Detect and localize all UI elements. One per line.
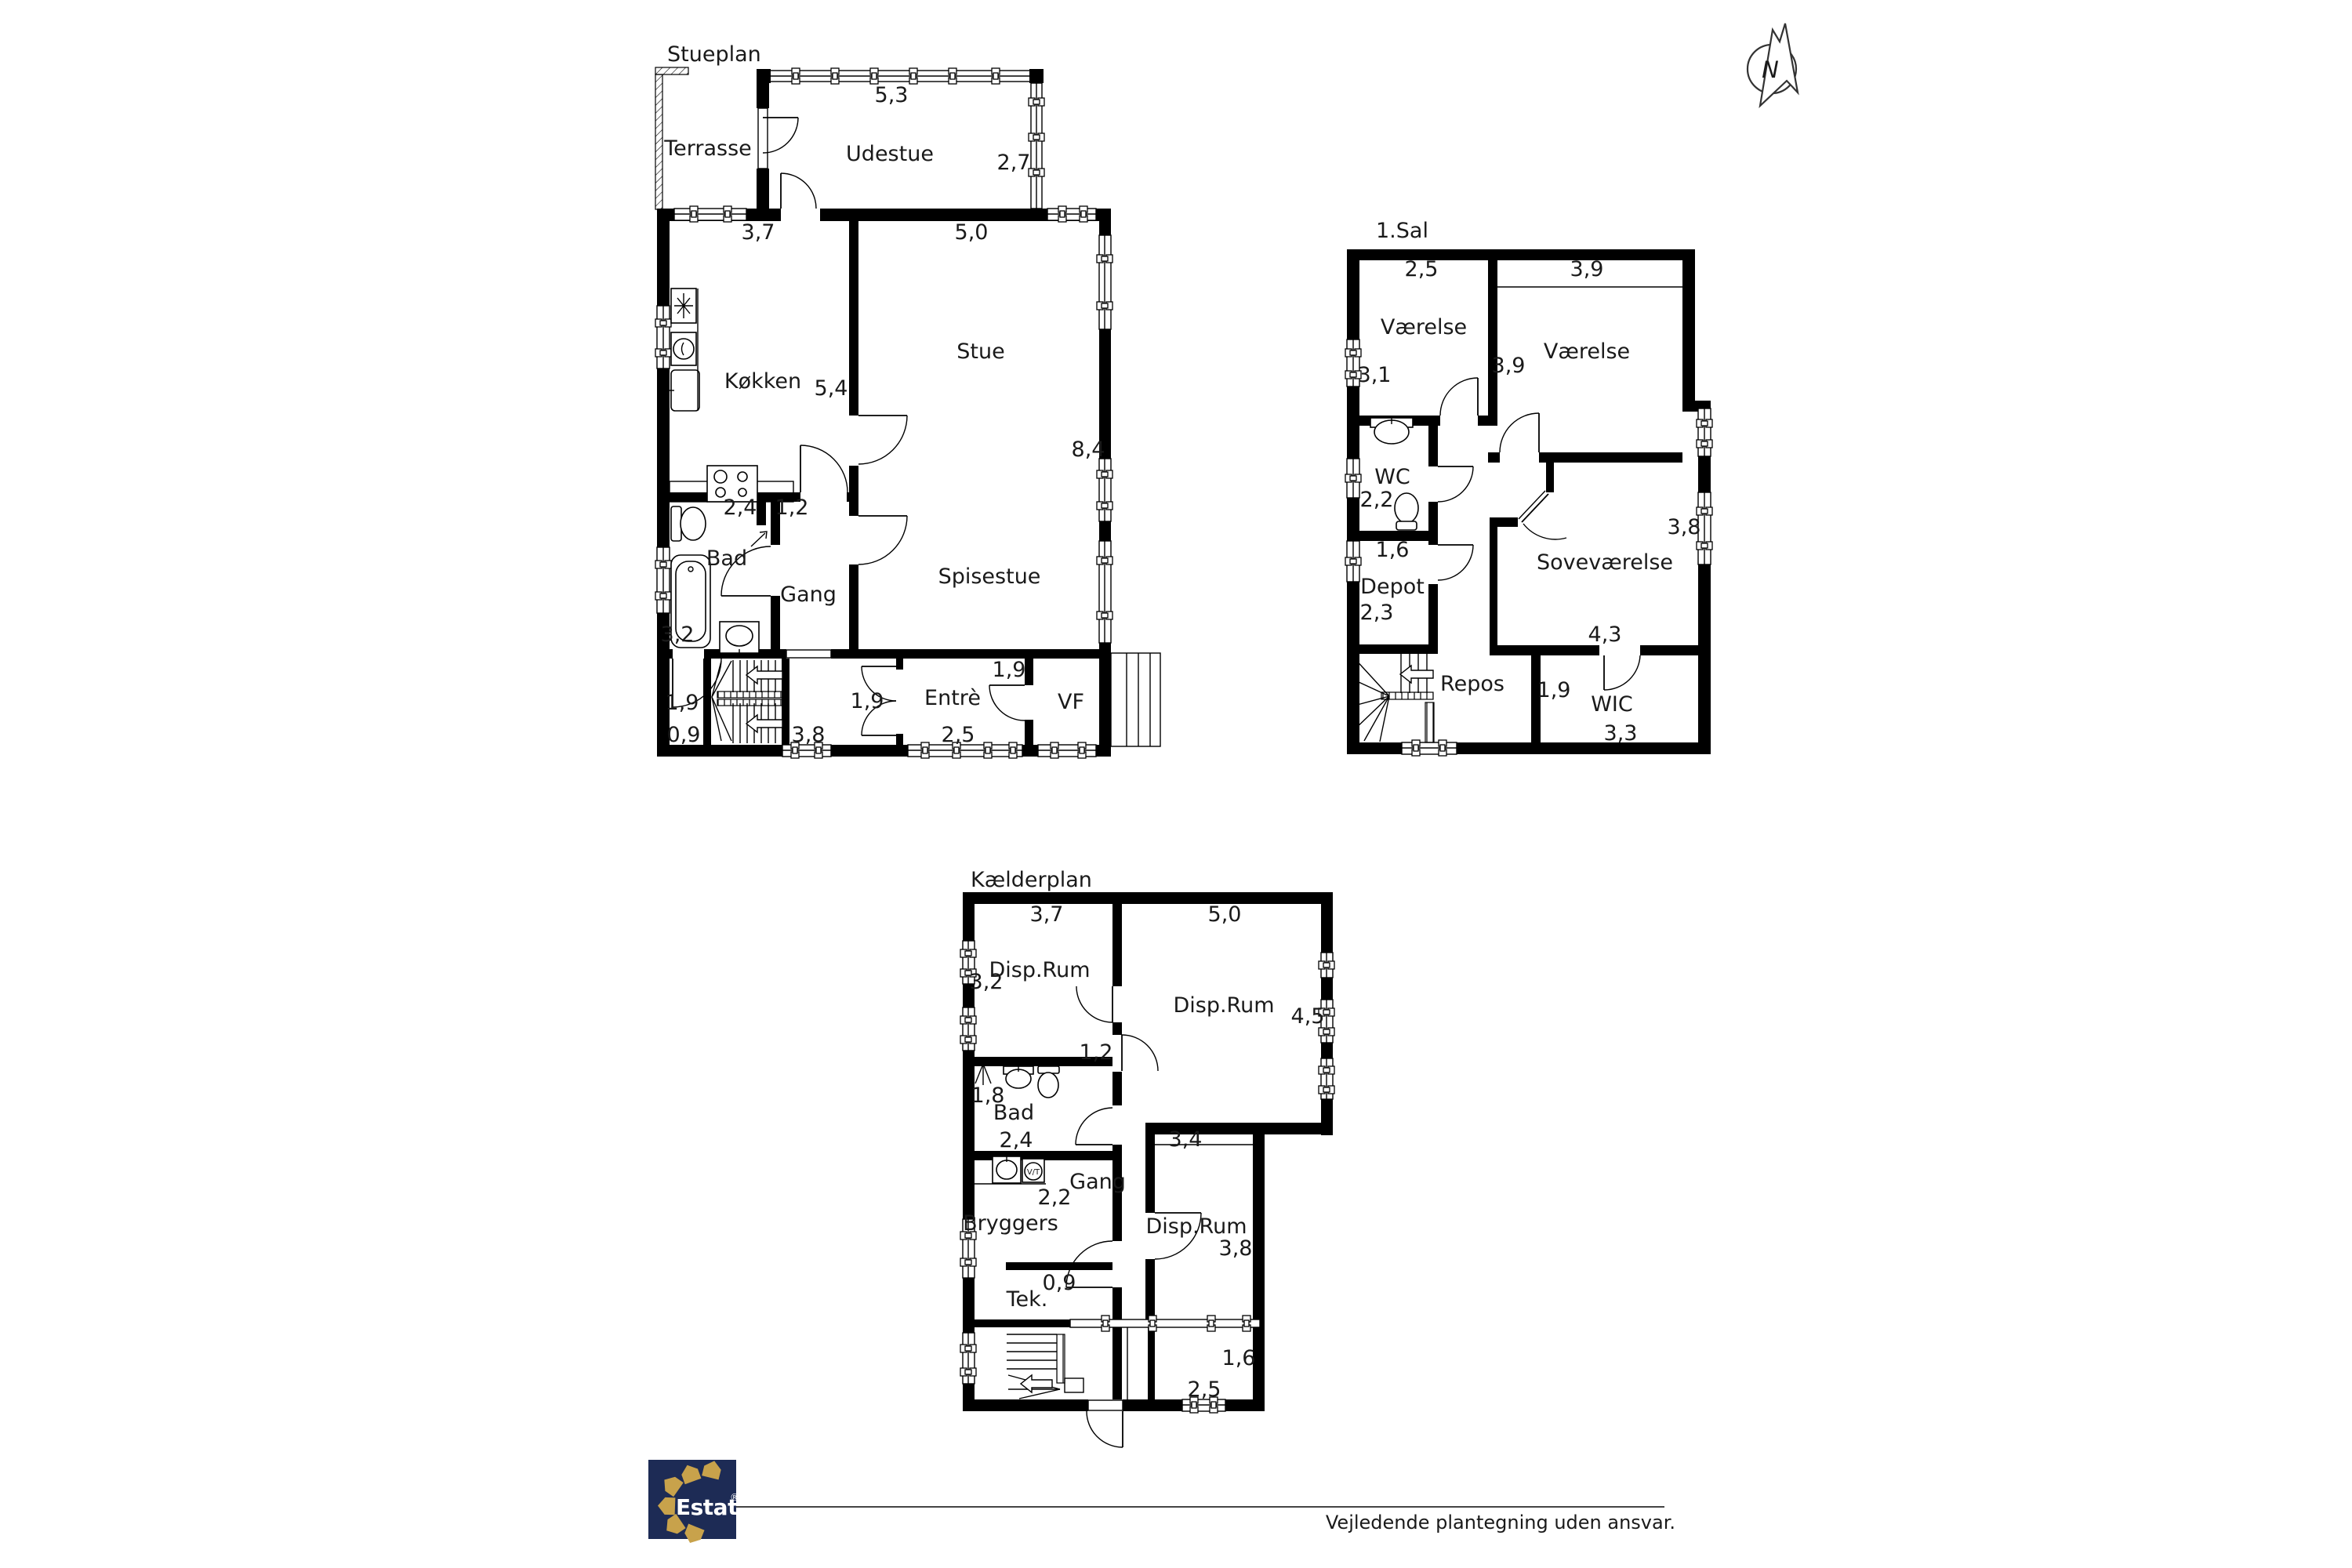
- plan-shape: [1347, 249, 1359, 754]
- toilet-icon: [1395, 493, 1418, 530]
- dimension-label: 1,9: [1537, 678, 1571, 702]
- plan-shape: [996, 1160, 1017, 1179]
- dimension-label: 1,9: [993, 658, 1026, 682]
- dimension-label: 0,9: [1043, 1271, 1076, 1295]
- dimension-label: 3,8: [792, 723, 826, 747]
- dimension-label: 2,2: [1360, 488, 1394, 512]
- plan-shape: [1697, 542, 1712, 550]
- plan-shape: [831, 649, 1111, 659]
- plan-shape: [717, 691, 788, 698]
- plan-shape: [1347, 644, 1438, 654]
- dimension-label: 3,2: [970, 970, 1004, 994]
- plan-shape: [1319, 961, 1334, 969]
- plan-shape: [963, 1399, 1088, 1411]
- plan-shape: [1025, 659, 1033, 685]
- plan-shape: [963, 1319, 1070, 1327]
- plan-shape: [1029, 98, 1044, 106]
- plan-shape: [757, 169, 769, 209]
- dimension-label: 0,9: [667, 723, 701, 747]
- plan-shape: [1519, 491, 1545, 519]
- plan-shape: [1478, 416, 1488, 426]
- plan-shape: [960, 1345, 976, 1352]
- toilet-icon: [1038, 1066, 1059, 1098]
- plan-shape: [1088, 1400, 1123, 1410]
- plan-shape: [1490, 517, 1518, 527]
- plan-shape: [1076, 986, 1112, 1022]
- plan-shape: [831, 68, 839, 84]
- plan-shape: [1148, 1327, 1155, 1399]
- sal1-drawing: 1.Sal: [1345, 219, 1712, 756]
- plan-shape: [1243, 1316, 1250, 1331]
- dimension-label: 1,6: [1222, 1346, 1256, 1370]
- plan-shape: [738, 472, 747, 481]
- plan-shape: [671, 506, 681, 541]
- plan-shape: [858, 516, 907, 564]
- plan-shape: [746, 715, 782, 732]
- plan-shape: [1145, 1134, 1155, 1213]
- room-label: Udestue: [846, 142, 934, 166]
- dimension-label: 8,4: [1072, 437, 1105, 462]
- plan-shape: [673, 339, 694, 359]
- plan-shape: [657, 209, 670, 757]
- dimension-label: 2,2: [1038, 1185, 1072, 1210]
- stueplan-stairs: [712, 660, 788, 743]
- plan-shape: [992, 68, 1000, 84]
- plan-shape: [763, 118, 798, 153]
- plan-shape: [1225, 1399, 1265, 1411]
- hand-sink-icon: [1370, 418, 1413, 444]
- room-label: Gang: [1069, 1170, 1126, 1194]
- plan-shape: [655, 319, 671, 327]
- kitchen-sink-icon: [666, 370, 699, 411]
- plan-shape: [1400, 666, 1433, 683]
- dimension-label: 2,7: [997, 151, 1031, 175]
- plan-shape: [1488, 249, 1497, 426]
- plan-shape: [1122, 1035, 1158, 1071]
- room-label: Entrè: [924, 686, 981, 710]
- plan-shape: [1097, 470, 1112, 478]
- dimension-label: 3,9: [1492, 354, 1526, 378]
- dimension-label: 5,0: [955, 220, 989, 245]
- plan-shape: [983, 1064, 991, 1083]
- plan-shape: [1440, 378, 1478, 416]
- plan-shape: [726, 626, 753, 646]
- plan-shape: [1076, 1108, 1112, 1145]
- plan-shape: [1395, 493, 1418, 523]
- plan-shape: [671, 370, 699, 411]
- plan-shape: [655, 561, 671, 568]
- laundry-sink-icon: [993, 1156, 1021, 1183]
- plan-shape: [1682, 249, 1695, 406]
- plan-shape: [1051, 742, 1058, 758]
- floorplan-page: Stueplan: [0, 0, 2352, 1568]
- plan-shape: [960, 1036, 976, 1044]
- plan-shape: [1123, 1399, 1182, 1411]
- plan-shape: [771, 596, 780, 649]
- plan-shape: [690, 206, 698, 222]
- plan-shape: [1490, 527, 1497, 655]
- plan-shape: [1097, 255, 1112, 263]
- plan-shape: [1523, 524, 1566, 539]
- plan-shape: [870, 68, 878, 84]
- dimension-label: 2,4: [1000, 1128, 1033, 1152]
- plan-shape: [984, 742, 992, 758]
- plan-shape: [1500, 413, 1539, 452]
- kitchen-fixtures: [666, 289, 793, 502]
- plan-shape: [858, 416, 907, 464]
- dimension-label: 5,4: [815, 376, 848, 401]
- plan-shape: [1006, 1262, 1112, 1270]
- plan-shape: [1029, 133, 1044, 141]
- plan-shape: [1439, 740, 1446, 756]
- plan-shape: [655, 67, 688, 74]
- plan-shape: [1058, 206, 1066, 222]
- plan-shape: [800, 445, 848, 492]
- oven-icon: [671, 332, 696, 365]
- dimension-label: 2,3: [1360, 601, 1394, 625]
- dimension-label: 3,7: [1030, 902, 1064, 927]
- plan-shape: [1207, 1316, 1215, 1331]
- room-label: Bryggers: [963, 1211, 1058, 1236]
- plan-shape: [960, 1258, 976, 1266]
- hand-sink-icon: [720, 622, 759, 655]
- kaelder-drawing: Kælderplan: [960, 868, 1334, 1447]
- plan-shape: [849, 564, 858, 657]
- plan-shape: [1065, 1378, 1083, 1392]
- plan-shape: [1412, 740, 1420, 756]
- floor-title: Kælderplan: [971, 868, 1092, 892]
- toilet-icon: [671, 506, 706, 541]
- plan-shape: [1087, 1411, 1123, 1447]
- plan-shape: [1006, 1069, 1031, 1088]
- room-label: WIC: [1591, 692, 1633, 717]
- plan-shape: [655, 592, 671, 600]
- dimension-label: 3,8: [1219, 1236, 1253, 1261]
- room-label: Stue: [956, 339, 1004, 364]
- plan-shape: [1396, 521, 1417, 530]
- plan-shape: [781, 173, 816, 209]
- plan-shape: [1057, 1334, 1065, 1383]
- floorplan-canvas: Stueplan: [0, 0, 2352, 1568]
- plan-shape: [1347, 249, 1695, 260]
- dimension-label: 4,5: [1291, 1004, 1325, 1029]
- dimension-label: 3,3: [1604, 721, 1638, 746]
- plan-shape: [1640, 645, 1711, 655]
- plan-shape: [1428, 584, 1438, 654]
- plan-shape: [1319, 1028, 1334, 1036]
- plan-shape: [960, 1016, 976, 1024]
- plan-shape: [1546, 463, 1554, 492]
- dimension-label: 3,8: [1668, 515, 1701, 539]
- plan-shape: [960, 949, 976, 957]
- plan-shape: [989, 685, 1025, 720]
- plan-shape: [1345, 474, 1361, 482]
- plan-shape: [1604, 655, 1640, 690]
- plan-shape: [963, 892, 1331, 904]
- plan-shape: [1428, 426, 1438, 466]
- room-label: Bad: [993, 1101, 1034, 1125]
- plan-shape: [792, 68, 800, 84]
- plan-shape: [1029, 69, 1044, 83]
- plan-shape: [681, 507, 706, 540]
- plan-shape: [1364, 696, 1389, 741]
- room-label: Disp.Rum: [1145, 1214, 1247, 1239]
- plan-shape: [757, 71, 769, 108]
- dimension-label: 2,4: [724, 495, 757, 520]
- plan-shape: [960, 1368, 976, 1376]
- room-label: Repos: [1440, 672, 1504, 696]
- dimension-label: 3,9: [1570, 257, 1604, 281]
- dimension-label: 1,6: [1376, 538, 1410, 562]
- plan-shape: [896, 659, 903, 670]
- plan-shape: [1697, 419, 1712, 427]
- plan-shape: [1102, 1316, 1109, 1331]
- dimension-label: 4,3: [1588, 622, 1622, 647]
- dimension-label: 3,2: [661, 622, 695, 647]
- dimension-label: 2,5: [1405, 257, 1439, 281]
- plan-shape: [909, 68, 917, 84]
- plan-shape: [1111, 653, 1160, 746]
- plan-shape: [1025, 720, 1033, 745]
- plan-shape: [1097, 557, 1112, 564]
- plan-shape: [1380, 696, 1389, 742]
- dimension-label: 5,0: [1208, 902, 1242, 927]
- room-label: Tek.: [1006, 1287, 1048, 1312]
- north-label: N: [1762, 56, 1779, 83]
- room-label: WC: [1374, 465, 1410, 489]
- plan-shape: [1112, 1022, 1122, 1035]
- washer-label: V/T: [1027, 1168, 1040, 1177]
- plan-shape: [703, 659, 711, 745]
- plan-shape: [1009, 742, 1017, 758]
- estate-logo: Estate ®: [648, 1459, 752, 1546]
- plan-shape: [1345, 557, 1361, 565]
- plan-shape: [849, 221, 858, 416]
- plan-shape: [757, 502, 766, 525]
- plan-shape: [847, 492, 858, 502]
- room-label: Soveværelse: [1537, 550, 1673, 575]
- room-label: Disp.Rum: [989, 958, 1090, 982]
- room-label: Værelse: [1381, 315, 1467, 339]
- external-steps: [1111, 653, 1160, 746]
- plan-shape: [1149, 1316, 1156, 1331]
- dimension-label: 1,9: [666, 691, 699, 715]
- plan-shape: [1425, 702, 1434, 742]
- plan-shape: [1112, 1072, 1122, 1105]
- plan-shape: [1697, 507, 1712, 515]
- plan-shape: [849, 466, 858, 516]
- plan-shape: [1078, 742, 1086, 758]
- plan-shape: [1697, 440, 1712, 448]
- plan-shape: [921, 742, 929, 758]
- plan-shape: [746, 666, 782, 684]
- plan-shape: [1490, 645, 1599, 655]
- room-label: Bad: [706, 546, 747, 571]
- floor-title: Stueplan: [667, 42, 761, 67]
- plan-shape: [975, 1064, 983, 1083]
- plan-shape: [1345, 349, 1361, 357]
- plan-shape: [1539, 452, 1682, 463]
- plan-shape: [1070, 1319, 1260, 1327]
- dimension-label: 2,5: [942, 723, 975, 747]
- fridge-icon: [671, 289, 696, 323]
- disclaimer-text: Vejledende plantegning uden ansvar.: [1326, 1512, 1675, 1534]
- room-label: Terrasse: [663, 136, 752, 161]
- dimension-label: 1,2: [775, 495, 809, 520]
- room-label: Gang: [780, 583, 837, 607]
- plan-shape: [949, 68, 956, 84]
- plan-shape: [1038, 1073, 1058, 1098]
- plan-shape: [655, 74, 662, 209]
- room-label: Køkken: [724, 369, 801, 394]
- plan-shape: [1522, 494, 1548, 522]
- plan-shape: [655, 349, 671, 357]
- dimension-label: 1,2: [1080, 1040, 1113, 1065]
- room-label: Depot: [1360, 575, 1425, 599]
- plan-shape: [1029, 169, 1044, 176]
- plan-shape: [1488, 452, 1500, 463]
- plan-shape: [1080, 206, 1087, 222]
- hand-sink-icon: [1004, 1066, 1033, 1088]
- plan-shape: [1319, 1066, 1334, 1074]
- dimension-label: 3,4: [1169, 1127, 1203, 1152]
- room-label: Disp.Rum: [1173, 993, 1274, 1018]
- kaelder-stairs: [1007, 1334, 1083, 1399]
- sal1-stairs: [1348, 652, 1434, 742]
- plan-shape: [1097, 502, 1112, 510]
- plan-shape: [1019, 1389, 1060, 1399]
- plan-shape: [1319, 1086, 1334, 1094]
- plan-shape: [1097, 612, 1112, 619]
- floor-title: 1.Sal: [1376, 219, 1428, 243]
- bad-door-arrow: [751, 532, 767, 546]
- north-compass-icon: N: [1748, 24, 1798, 106]
- room-label: Spisestue: [938, 564, 1041, 589]
- plan-shape: [717, 699, 788, 706]
- plan-shape: [1112, 1287, 1122, 1399]
- dimension-label: 3,7: [742, 220, 775, 245]
- plan-shape: [1438, 466, 1473, 502]
- dimension-label: 3,1: [1358, 363, 1392, 387]
- plan-shape: [1097, 302, 1112, 310]
- room-label: Værelse: [1544, 339, 1630, 364]
- dimension-label: 1,9: [851, 689, 884, 713]
- dimension-label: 2,5: [1188, 1377, 1221, 1402]
- logo-registered-mark: ®: [730, 1492, 739, 1503]
- plan-shape: [1112, 904, 1122, 986]
- plan-shape: [786, 650, 831, 658]
- plan-shape: [1438, 545, 1473, 580]
- plan-shape: [896, 734, 903, 745]
- stueplan-drawing: Stueplan: [655, 42, 1160, 758]
- plan-shape: [657, 649, 673, 659]
- room-label: VF: [1058, 690, 1084, 714]
- plan-shape: [714, 470, 727, 483]
- plan-shape: [724, 206, 731, 222]
- dimension-label: 5,3: [875, 83, 909, 107]
